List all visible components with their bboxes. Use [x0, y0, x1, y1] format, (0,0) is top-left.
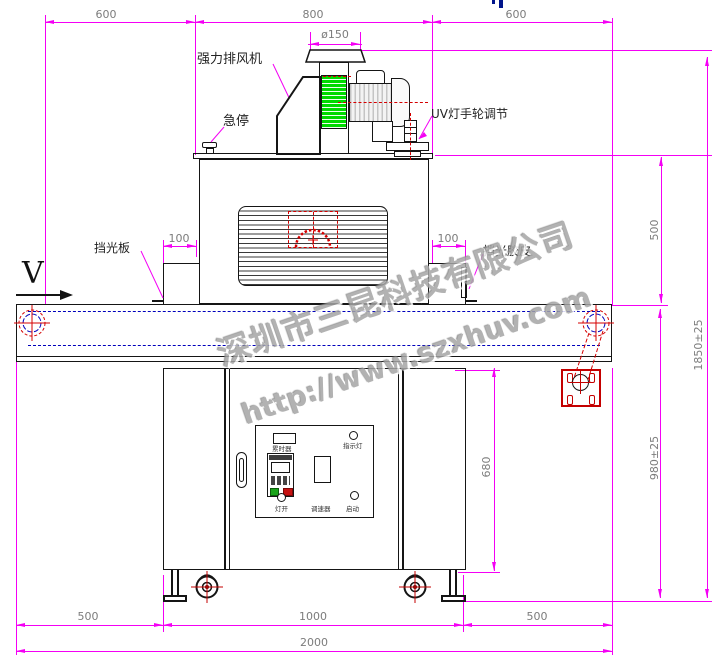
- duct-flare: [306, 50, 365, 62]
- belt-tension-path: [574, 333, 589, 378]
- leader-emergency-stop: [211, 127, 224, 142]
- conveyor-roller-left: [14, 305, 50, 341]
- label-exhaust-fan: 强力排风机: [197, 53, 262, 66]
- label-light-baffle: 挡光板: [94, 242, 130, 255]
- drawing-canvas: 600 800 600 ø150 100 100 500 1850±25 980…: [0, 0, 720, 662]
- blower-hopper: [277, 77, 320, 154]
- label-uv-handwheel: UV灯手轮调节: [431, 108, 508, 121]
- caster-left: [191, 571, 223, 603]
- linework-overlay: [0, 0, 720, 662]
- leader-uv-arrowhead: [419, 132, 427, 139]
- label-emergency-stop: 急停: [223, 115, 249, 128]
- leader-light-baffle: [141, 251, 163, 298]
- caster-right: [399, 571, 431, 603]
